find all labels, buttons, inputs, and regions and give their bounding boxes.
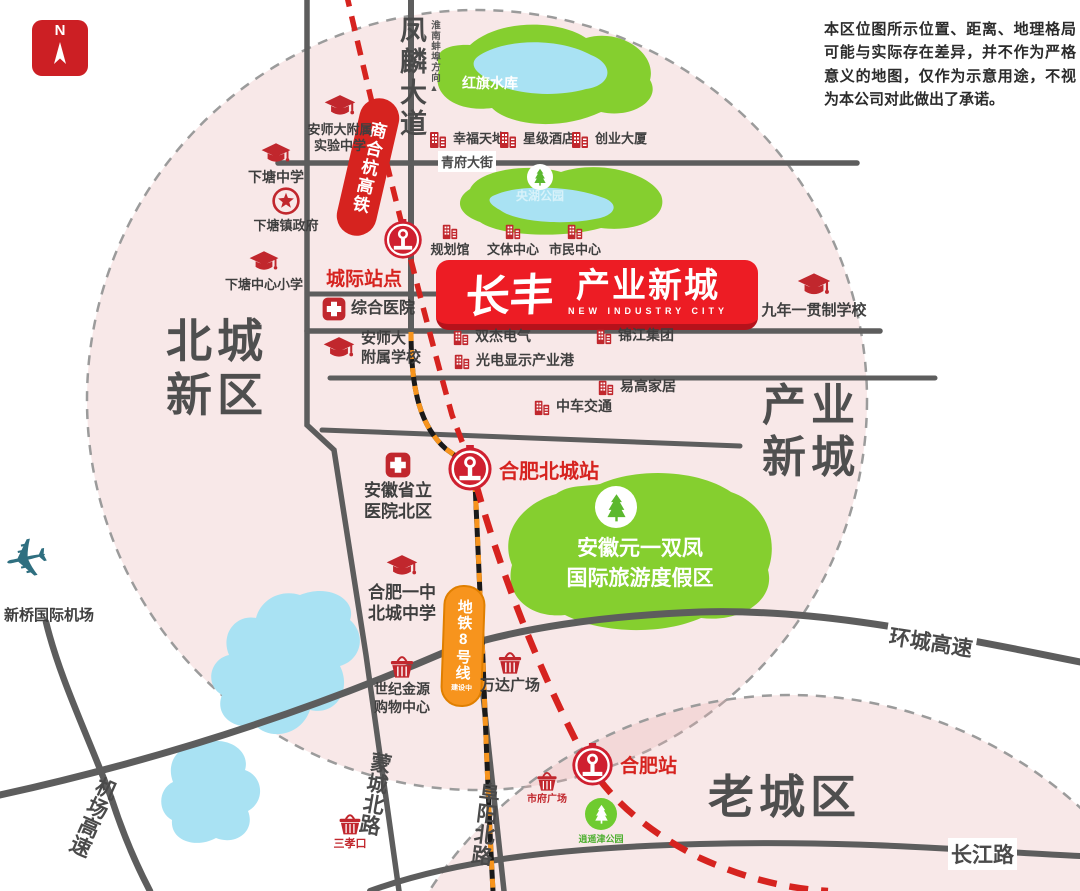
building-icon [441, 222, 459, 240]
poi-label: 综合医院 [351, 299, 415, 319]
metro-banner-status: 建设中 [451, 683, 472, 694]
school-cap-icon [260, 142, 292, 167]
disclaimer-text: 本区位图所示位置、距离、地理格局可能与实际存在差异，并不作为严格意义的地图，仅作… [824, 18, 1076, 111]
poi-label: 合肥一中 北城中学 [368, 582, 436, 625]
tree-icon [604, 493, 629, 522]
tree-icon [532, 168, 548, 186]
poi-label: 市府广场 [527, 794, 567, 807]
building-icon [533, 398, 551, 416]
airport-label: 新桥国际机场 [4, 604, 124, 625]
poi-label: 安徽省立 医院北区 [364, 480, 432, 523]
road-label-changjiang: 长江路 [948, 838, 1017, 870]
resort-park-badge [595, 486, 637, 528]
direction-arrow-icon: ▲ [430, 84, 439, 93]
beicheng-station-icon [447, 445, 493, 491]
school-cap-icon [322, 336, 356, 362]
xiaoyaojin-park-label: 逍遥津公园 [568, 832, 634, 845]
building-icon [570, 129, 590, 149]
direction-note: 淮南蚌埠方向 ▲ [427, 20, 441, 93]
compass-needle-icon [45, 40, 75, 70]
school-cap-icon [248, 250, 280, 275]
poi-nine-year-school: 九年一贯制学校 [756, 272, 872, 321]
poi-sanxiaokou: 三孝口 [324, 812, 376, 852]
region-label-old-town: 老城区 [708, 770, 861, 824]
building-icon [595, 327, 613, 345]
compass-n-label: N [55, 23, 66, 40]
building-icon [428, 129, 448, 149]
poi-star-hotel: 星级酒店 [498, 129, 575, 149]
beicheng-station-label: 合肥北城站 [499, 455, 599, 484]
poi-hefei-no1-north-school: 合肥一中 北城中学 [356, 554, 448, 625]
airport-expressway [46, 622, 150, 891]
poi-shiji-jinyuan-mall: 世纪金源 购物中心 [366, 654, 438, 716]
poi-label: 万达广场 [480, 677, 540, 696]
poi-label: 市民中心 [549, 242, 601, 258]
qingfu-park-badge [527, 164, 553, 190]
hefei-station-label: 合肥站 [620, 751, 677, 778]
poi-xiatang-government: 下塘镇政府 [242, 186, 330, 234]
hefei-station-icon [571, 743, 614, 786]
poi-planning-hall: 规划馆 [424, 222, 476, 258]
poi-optoelectronics-port: 光电显示产业港 [453, 352, 574, 370]
poi-yigao-home: 易高家居 [597, 378, 676, 396]
direction-note-text: 淮南蚌埠方向 [427, 20, 441, 83]
poi-jinjiang-group: 锦江集团 [595, 327, 674, 345]
xiaoyaojin-park-badge [585, 798, 617, 830]
building-icon [498, 129, 518, 149]
poi-label: 下塘镇政府 [253, 218, 318, 234]
poi-label: 九年一贯制学校 [761, 302, 866, 321]
government-star-icon [271, 186, 301, 216]
poi-label: 双杰电气 [475, 328, 531, 346]
compass: N [32, 20, 88, 76]
shopping-basket-icon [496, 650, 524, 675]
poi-culture-sports-center: 文体中心 [482, 222, 544, 258]
poi-crrc-transport: 中车交通 [533, 398, 612, 416]
school-cap-icon [323, 94, 357, 120]
banner-brand: 长丰 [464, 258, 556, 325]
building-icon [597, 378, 615, 396]
region-label-beicheng-newtown: 北城 新区 [166, 314, 268, 423]
poi-xiatang-middle-school: 下塘中学 [238, 142, 314, 187]
poi-label: 创业大厦 [595, 131, 647, 147]
shopping-basket-icon [388, 654, 416, 679]
poi-label: 安师大附属 实验中学 [307, 122, 372, 155]
building-icon [504, 222, 522, 240]
building-icon [566, 222, 584, 240]
road-label-qingfu: 青府大街 [438, 151, 496, 172]
chengji-station-label: 城际站点 [326, 264, 402, 291]
poi-label: 易高家居 [620, 378, 676, 396]
map-canvas: N 本区位图所示位置、距离、地理格局可能与实际存在差异，并不作为严格意义的地图，… [0, 0, 1080, 891]
poi-label: 安师大 附属学校 [361, 330, 421, 368]
hospital-cross-icon [385, 452, 411, 478]
shopping-basket-icon [535, 770, 559, 792]
poi-label: 世纪金源 购物中心 [374, 681, 430, 716]
banner-subtitle: NEW INDUSTRY CITY [568, 306, 728, 316]
poi-wanda-plaza: 万达广场 [472, 650, 548, 696]
region-label-industry-newtown: 产业 新城 [762, 380, 860, 484]
project-banner: 长丰 产业新城 NEW INDUSTRY CITY [436, 260, 758, 330]
building-icon [452, 328, 470, 346]
poi-label: 光电显示产业港 [476, 352, 574, 370]
poi-xiatang-primary-school: 下塘中心小学 [216, 250, 312, 293]
tree-icon [593, 804, 610, 824]
shopping-basket-icon [337, 812, 363, 836]
building-icon [453, 352, 471, 370]
banner-title: 产业新城 [576, 269, 720, 303]
school-cap-icon [796, 272, 832, 300]
poi-label: 锦江集团 [618, 327, 674, 345]
poi-chuangye-tower: 创业大厦 [570, 129, 647, 149]
poi-general-hospital: 综合医院 [322, 297, 415, 321]
poi-xingfu-tiandi: 幸福天地 [428, 129, 505, 149]
chengji-station-icon [383, 219, 423, 259]
poi-label: 规划馆 [430, 242, 469, 258]
poi-anshida-affiliated-school: 安师大 附属学校 [322, 330, 421, 368]
school-cap-icon [385, 554, 419, 580]
hongqi-reservoir-label: 红旗水库 [462, 73, 518, 93]
resort-label: 安徽元一双凤 国际旅游度假区 [510, 534, 770, 595]
hospital-cross-icon [322, 297, 346, 321]
poi-label: 下塘中学 [248, 169, 304, 187]
poi-label: 下塘中心小学 [225, 277, 303, 293]
poi-citizen-center: 市民中心 [544, 222, 606, 258]
poi-shifu-square: 市府广场 [520, 770, 574, 807]
poi-label: 星级酒店 [523, 131, 575, 147]
poi-label: 文体中心 [487, 242, 539, 258]
poi-shuangjie-electric: 双杰电气 [452, 328, 531, 346]
poi-provincial-hospital-north: 安徽省立 医院北区 [352, 452, 444, 523]
poi-label: 中车交通 [556, 398, 612, 416]
poi-label: 三孝口 [334, 838, 367, 852]
